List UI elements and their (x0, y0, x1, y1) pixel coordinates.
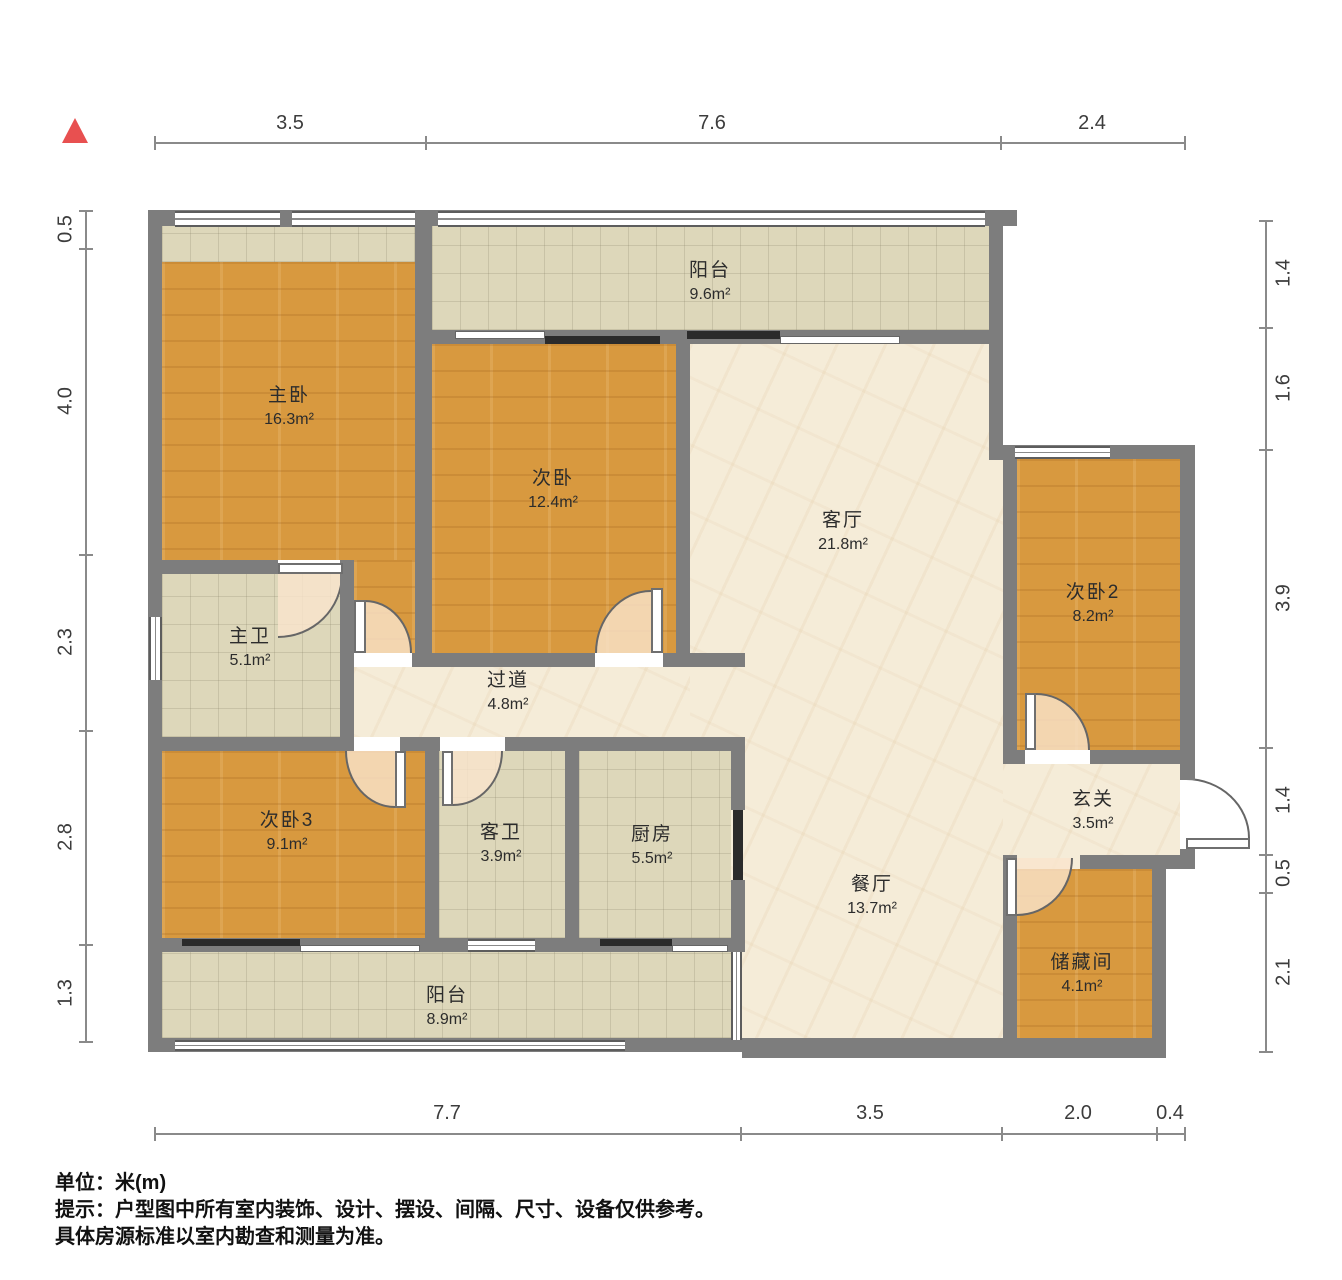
wall (505, 737, 745, 751)
wall (989, 210, 1003, 460)
label-master-bath: 主卫 5.1m² (229, 624, 271, 671)
tip-text2: 具体房源标准以室内勘查和测量为准。 (55, 1226, 395, 1248)
window-master-bath (149, 617, 162, 680)
dimension-tick (1259, 854, 1273, 856)
room-name: 客厅 (818, 508, 868, 534)
window-balcony-top (438, 211, 985, 227)
dimension-label: 2.3 (55, 628, 78, 656)
dimension-line-bottom (154, 1133, 1185, 1135)
room-area: 9.1m² (260, 834, 315, 856)
label-storage: 储藏间 4.1m² (1050, 950, 1113, 997)
dimension-tick (1259, 220, 1273, 222)
wall (412, 653, 595, 667)
window-mullion (280, 210, 292, 227)
wall (415, 344, 432, 667)
dimension-label: 3.9 (1273, 584, 1296, 612)
wall (415, 210, 432, 344)
wall (162, 737, 345, 751)
dimension-tick (1259, 327, 1273, 329)
room-area: 4.1m² (1050, 976, 1113, 998)
floor-plan: 阳台 9.6m² 主卧 16.3m² 次卧 12.4m² 客厅 21.8m² 次… (0, 0, 1342, 1280)
door-leaf-bedroom-2 (651, 588, 663, 653)
room-name: 主卫 (229, 624, 271, 650)
dimension-tick (79, 944, 93, 946)
room-name: 阳台 (426, 983, 468, 1009)
room-area: 5.1m² (229, 650, 271, 672)
room-area: 3.5m² (1072, 813, 1114, 835)
dimension-label: 0.5 (1273, 859, 1296, 887)
dimension-tick (79, 210, 93, 212)
room-name: 次卧2 (1066, 580, 1121, 606)
dimension-label: 4.0 (55, 387, 78, 415)
dimension-label: 3.5 (276, 112, 304, 135)
door-leaf-guest-bath (442, 751, 453, 806)
footer-unit-line: 单位：米(m) (55, 1170, 166, 1197)
dimension-tick (740, 1127, 742, 1141)
footer-tip-line1: 提示：户型图中所有室内装饰、设计、摆设、间隔、尺寸、设备仅供参考。 (55, 1197, 715, 1224)
label-hallway: 过道 4.8m² (487, 668, 529, 715)
room-area: 13.7m² (847, 898, 897, 920)
wall (400, 737, 440, 751)
room-area: 8.9m² (426, 1009, 468, 1031)
wall (1180, 445, 1195, 780)
room-name: 客卫 (480, 820, 522, 846)
label-master-bedroom: 主卧 16.3m² (264, 383, 314, 430)
dimension-tick (1259, 1051, 1273, 1053)
dimension-label: 2.1 (1273, 958, 1296, 986)
floor-bay-strip (162, 226, 415, 262)
wall (340, 560, 354, 751)
sliding-door-mark (455, 331, 545, 339)
sliding-door-mark (600, 939, 672, 946)
dimension-tick (1000, 136, 1002, 150)
room-area: 8.2m² (1066, 606, 1121, 628)
wall (425, 751, 439, 952)
dimension-tick (1001, 1127, 1003, 1141)
room-name: 过道 (487, 668, 529, 694)
label-bedroom-2: 次卧 12.4m² (528, 466, 578, 513)
door-leaf-bedroom-3 (1025, 693, 1036, 750)
dimension-label: 1.3 (55, 979, 78, 1007)
room-area: 16.3m² (264, 409, 314, 431)
dimension-tick (1259, 449, 1273, 451)
label-kitchen: 厨房 5.5m² (631, 822, 673, 869)
dimension-label: 2.8 (55, 823, 78, 851)
dimension-tick (79, 1041, 93, 1043)
sliding-door-mark (733, 810, 743, 880)
dimension-label: 7.6 (698, 112, 726, 135)
dimension-label: 3.5 (856, 1102, 884, 1125)
wall (162, 560, 278, 574)
tip-text: 户型图中所有室内装饰、设计、摆设、间隔、尺寸、设备仅供参考。 (115, 1199, 715, 1221)
window-master-bedroom (175, 211, 415, 227)
wall (742, 1038, 1166, 1058)
window-dining-balcony-divider (731, 952, 742, 1040)
room-name: 储藏间 (1050, 950, 1113, 976)
sliding-door-mark (780, 336, 900, 344)
dimension-label: 2.4 (1078, 112, 1106, 135)
sliding-door-mark (672, 945, 728, 952)
room-area: 4.8m² (487, 694, 529, 716)
unit-value: 米(m) (115, 1172, 166, 1194)
room-area: 9.6m² (689, 284, 731, 306)
dimension-tick (79, 248, 93, 250)
dimension-label: 1.4 (1273, 786, 1296, 814)
label-balcony-top: 阳台 9.6m² (689, 258, 731, 305)
window-balcony-bottom (175, 1040, 625, 1051)
label-living-room: 客厅 21.8m² (818, 508, 868, 555)
wall (565, 751, 579, 952)
door-leaf-bedroom-4 (395, 751, 406, 808)
wall (1003, 750, 1025, 764)
room-area: 12.4m² (528, 492, 578, 514)
window-guest-bath (468, 939, 535, 952)
dimension-tick (154, 1127, 156, 1141)
dimension-label: 1.6 (1273, 374, 1296, 402)
dimension-tick (1184, 136, 1186, 150)
door-leaf-entry (1186, 838, 1250, 849)
dimension-label: 2.0 (1064, 1102, 1092, 1125)
door-arc-entry (1186, 778, 1250, 838)
door-leaf-master-bath (278, 563, 343, 574)
wall (1090, 750, 1180, 764)
wall (676, 330, 690, 667)
dimension-line-left (85, 210, 87, 1043)
footer-tip-line2: 具体房源标准以室内勘查和测量为准。 (55, 1224, 395, 1251)
dimension-label: 0.5 (55, 215, 78, 243)
dimension-tick (1184, 1127, 1186, 1141)
sliding-door-mark (545, 336, 660, 344)
room-name: 餐厅 (847, 872, 897, 898)
room-area: 21.8m² (818, 534, 868, 556)
room-name: 玄关 (1072, 787, 1114, 813)
dimension-tick (1156, 1127, 1158, 1141)
label-guest-bath: 客卫 3.9m² (480, 820, 522, 867)
sliding-door-mark (300, 945, 420, 952)
room-area: 3.9m² (480, 846, 522, 868)
dimension-line-top (154, 142, 1185, 144)
room-name: 次卧 (528, 466, 578, 492)
wall (1152, 855, 1166, 1052)
dimension-label: 0.4 (1156, 1102, 1184, 1125)
wall (1003, 459, 1017, 764)
sliding-door-mark (182, 939, 300, 946)
room-name: 主卧 (264, 383, 314, 409)
wall (731, 751, 745, 810)
sliding-door-mark (687, 331, 780, 339)
room-name: 厨房 (631, 822, 673, 848)
window-bedroom-3 (1015, 446, 1110, 459)
dimension-line-right (1265, 220, 1267, 1053)
dimension-label: 1.4 (1273, 259, 1296, 287)
label-dining-room: 餐厅 13.7m² (847, 872, 897, 919)
unit-label: 单位： (55, 1172, 115, 1194)
door-leaf-storage (1006, 858, 1017, 916)
tip-label: 提示： (55, 1199, 115, 1221)
room-name: 阳台 (689, 258, 731, 284)
dimension-tick (154, 136, 156, 150)
dimension-tick (1259, 747, 1273, 749)
room-area: 5.5m² (631, 848, 673, 870)
room-name: 次卧3 (260, 808, 315, 834)
dimension-tick (79, 730, 93, 732)
dimension-tick (1259, 892, 1273, 894)
label-bedroom-4: 次卧3 9.1m² (260, 808, 315, 855)
label-entry: 玄关 3.5m² (1072, 787, 1114, 834)
label-balcony-bottom: 阳台 8.9m² (426, 983, 468, 1030)
label-bedroom-3: 次卧2 8.2m² (1066, 580, 1121, 627)
dimension-label: 7.7 (433, 1102, 461, 1125)
dimension-tick (425, 136, 427, 150)
north-indicator-icon (62, 118, 88, 143)
door-leaf-master-bedroom (354, 600, 366, 653)
wall (1080, 855, 1155, 869)
dimension-tick (79, 554, 93, 556)
